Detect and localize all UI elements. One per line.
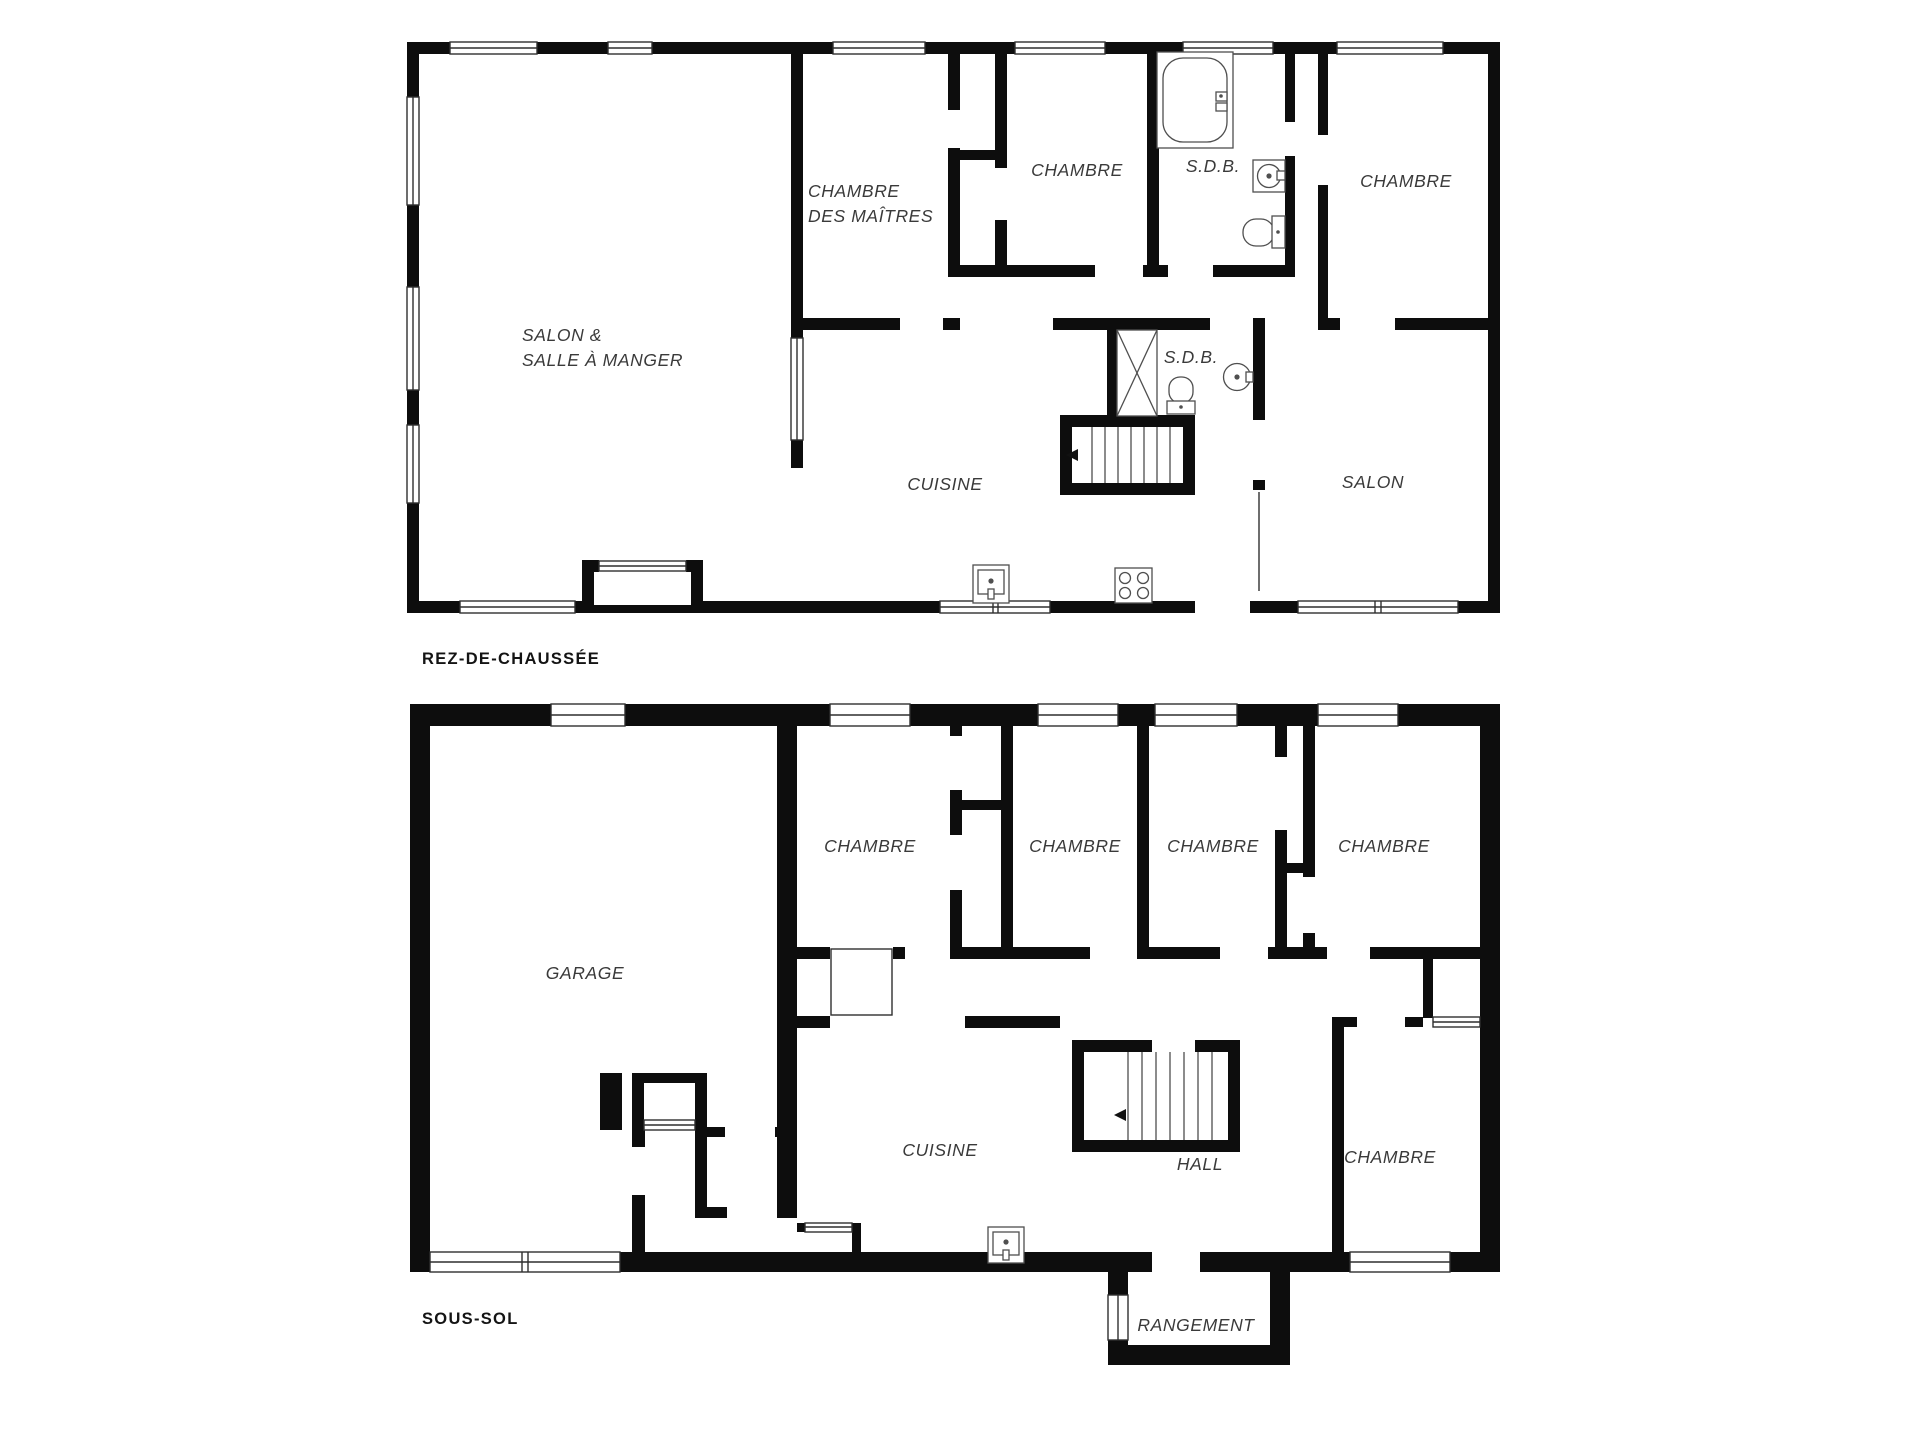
room-label-cuisine-rdc: CUISINE (907, 474, 982, 494)
room-label-salon-salle-a-manger-2: SALLE À MANGER (522, 350, 683, 370)
door-opening (1195, 601, 1250, 613)
floor-plan-page: SALON & SALLE À MANGER CHAMBRE DES MAÎTR… (0, 0, 1920, 1440)
door-opening (1275, 757, 1287, 830)
door-opening (950, 736, 962, 790)
door-opening (1152, 1040, 1195, 1052)
shower-icon (1117, 330, 1157, 416)
door-opening (777, 1218, 797, 1252)
closet-opening (831, 949, 892, 1015)
sliding-door (644, 1120, 695, 1130)
window (1337, 42, 1443, 54)
room-label-hall: HALL (1177, 1154, 1223, 1174)
door-opening (995, 168, 1007, 220)
window (1318, 704, 1398, 726)
door-opening (900, 318, 943, 330)
door-opening (905, 947, 950, 959)
window (599, 561, 686, 571)
door-opening (1220, 947, 1268, 959)
room-label-cuisine-sous-sol: CUISINE (902, 1140, 977, 1160)
window (830, 704, 910, 726)
room-label-chambre-5: CHAMBRE (1344, 1147, 1436, 1167)
toilet-icon (1243, 216, 1285, 248)
kitchen-sink-icon (988, 1227, 1024, 1263)
window (407, 287, 419, 390)
floor-rez-de-chaussee: SALON & SALLE À MANGER CHAMBRE DES MAÎTR… (407, 42, 1500, 668)
door-opening (727, 1207, 777, 1218)
stairs-down-icon (1114, 1052, 1212, 1140)
room-label-garage: GARAGE (546, 963, 624, 983)
room-label-chambre-des-maitres: CHAMBRE (808, 181, 900, 201)
window (1350, 1252, 1450, 1272)
door-opening (1327, 947, 1370, 959)
room-label-salon: SALON (1342, 472, 1404, 492)
door-opening (948, 110, 960, 148)
sliding-door (805, 1223, 852, 1232)
window (1015, 42, 1105, 54)
door-opening (1303, 877, 1315, 933)
room-label-chambre-3: CHAMBRE (1167, 836, 1259, 856)
sink-round-icon (1253, 160, 1285, 192)
door-opening (1340, 318, 1395, 330)
window (1298, 601, 1458, 613)
window (407, 425, 419, 503)
door-opening (1090, 947, 1137, 959)
window (608, 42, 652, 54)
window (460, 601, 575, 613)
room-label-chambre-haut-droite: CHAMBRE (1360, 171, 1452, 191)
labels-rdc: SALON & SALLE À MANGER CHAMBRE DES MAÎTR… (522, 156, 1452, 494)
stairs-direction-arrow (1114, 1109, 1126, 1121)
room-label-rangement: RANGEMENT (1137, 1315, 1255, 1335)
room-label-chambre-2: CHAMBRE (1029, 836, 1121, 856)
floor-title-sous-sol: SOUS-SOL (422, 1310, 519, 1328)
door-opening (1095, 265, 1143, 277)
window (551, 704, 625, 726)
kitchen-sink-icon (973, 565, 1009, 603)
window (450, 42, 537, 54)
door-opening (1318, 135, 1328, 185)
room-label-chambre-haut-centre: CHAMBRE (1031, 160, 1123, 180)
stairs-down-icon (1066, 427, 1170, 483)
window (1108, 1295, 1128, 1340)
stove-icon (1115, 568, 1152, 603)
room-label-chambre-1: CHAMBRE (824, 836, 916, 856)
room-label-sdb-haut: S.D.B. (1186, 156, 1240, 176)
toilet-icon (1167, 377, 1195, 414)
door-opening (1152, 1252, 1200, 1272)
garage-door-icon (430, 1252, 620, 1272)
door-opening (950, 835, 962, 890)
door-opening (1357, 1017, 1405, 1027)
room-label-salon-salle-a-manger: SALON & (522, 325, 602, 345)
window (791, 338, 803, 440)
window (407, 97, 419, 205)
alcove-interior (594, 572, 691, 605)
sink-round-icon (1224, 364, 1254, 391)
bathtub-icon (1157, 52, 1233, 148)
door-opening (725, 1127, 775, 1137)
window (1038, 704, 1118, 726)
floor-title-rez-de-chaussee: REZ-DE-CHAUSSÉE (422, 649, 600, 668)
window (1155, 704, 1237, 726)
floor-sous-sol: GARAGE CHAMBRE CHAMBRE CHAMBRE CHAMBRE C… (410, 704, 1500, 1365)
door-opening (1210, 318, 1253, 330)
room-label-chambre-4: CHAMBRE (1338, 836, 1430, 856)
room-label-sdb-centre: S.D.B. (1164, 347, 1218, 367)
door-opening (1168, 265, 1213, 277)
floor-plan-canvas: SALON & SALLE À MANGER CHAMBRE DES MAÎTR… (0, 0, 1920, 1440)
room-label-chambre-des-maitres-2: DES MAÎTRES (808, 206, 933, 226)
door-opening (1285, 122, 1295, 156)
window (833, 42, 925, 54)
sliding-door (1433, 1017, 1480, 1027)
